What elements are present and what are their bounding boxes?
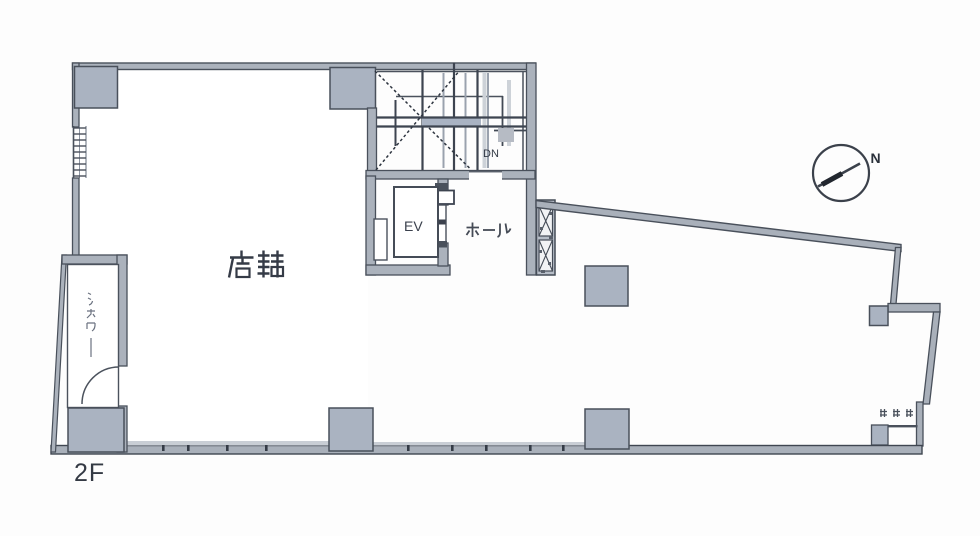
svg-text:2F: 2F <box>74 459 105 487</box>
svg-text:EV: EV <box>404 218 423 234</box>
svg-text:N: N <box>871 150 881 166</box>
svg-text:DN: DN <box>483 148 499 160</box>
